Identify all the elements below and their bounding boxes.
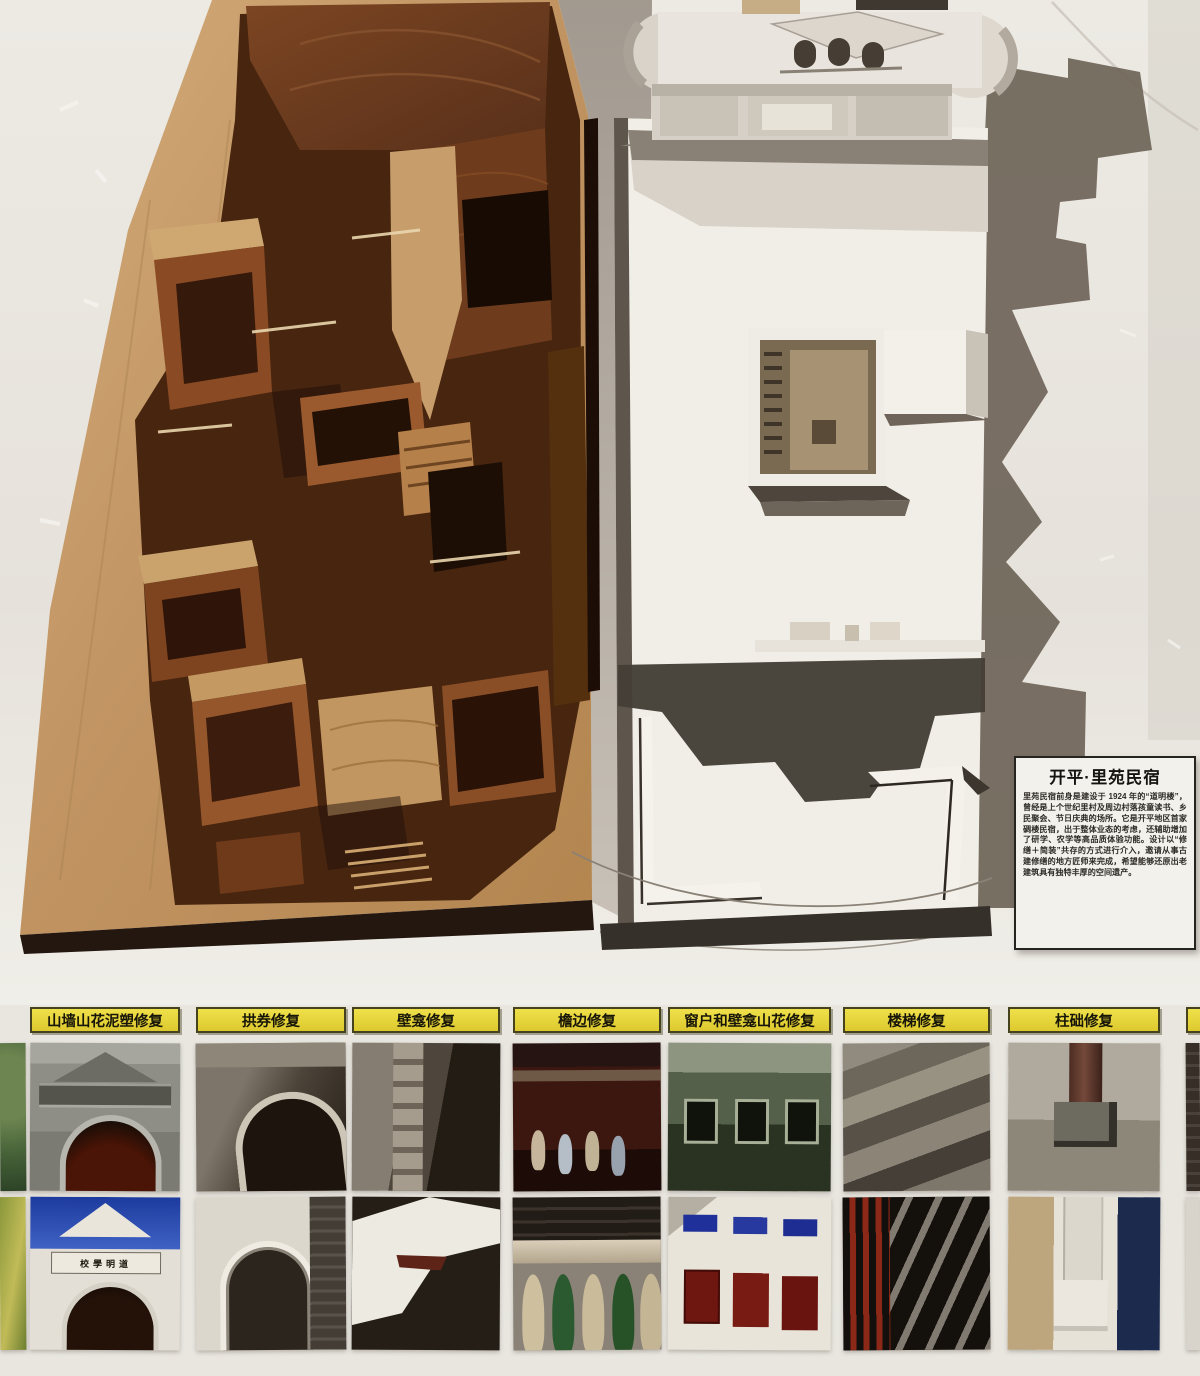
baluster-vases-shape [531,1131,545,1171]
blue-panels-shape [683,1215,717,1232]
plinth-shape [1053,1102,1117,1147]
baluster-vases-shape [522,1275,544,1351]
photo-after: 校學明道 [30,1197,181,1351]
info-card-title: 开平·里苑民宿 [1023,764,1187,788]
section-label: 拱券修复 [196,1007,346,1033]
plinth-shape [1053,1279,1108,1325]
section-label: 壁龛修复 [352,1007,500,1033]
partial-label [1186,1007,1200,1033]
section-stairs: 楼梯修复 [843,1005,990,1376]
photo-after [196,1197,347,1351]
rail-shape [513,1239,661,1263]
window-shape [785,1099,819,1144]
photo-before [30,1043,181,1192]
photo-after [668,1197,832,1351]
partial-photos-left [0,1005,26,1376]
photo-before [1008,1043,1161,1192]
partial-photos-right [1186,1005,1200,1376]
red-baluster-shape [843,1197,891,1350]
arch-shape [220,1241,317,1351]
window-shape [684,1099,718,1144]
photo-before [843,1043,991,1192]
photo-after [1008,1197,1161,1351]
section-label: 柱础修复 [1008,1007,1160,1033]
column-shape [393,1043,423,1191]
photo-partial-trees [0,1043,26,1191]
column-shape [1069,1043,1103,1111]
photo-before [352,1043,501,1192]
section-niche: 壁龛修复 [352,1005,500,1376]
section-label: 楼梯修复 [843,1007,990,1033]
section-gable-stucco: 山墙山花泥塑修复 校學明道 [30,1005,180,1376]
photo-partial-field [0,1197,26,1350]
gate-plaque: 校學明道 [51,1252,161,1274]
photo-before [196,1043,347,1192]
photo-after [513,1197,662,1351]
column-shape [1063,1197,1104,1283]
photo-before [668,1043,832,1192]
arch-shape [61,1281,158,1350]
exhibition-photo: 开平·里苑民宿 里苑民宿前身是建设于 1924 年的“道明楼”，曾经是上个世纪里… [0,0,1200,1376]
arch-shape [60,1115,162,1192]
restoration-strip: 山墙山花泥塑修复 校學明道 拱券修复 [0,1005,1200,1376]
info-card-body: 里苑民宿前身是建设于 1924 年的“道明楼”，曾经是上个世纪里村及周边村落孩童… [1023,792,1187,879]
pediment-shape [53,1052,157,1083]
cornice-shape [352,1197,501,1351]
photo-after [352,1197,501,1351]
section-windows-gable: 窗户和壁龛山花修复 [668,1005,831,1376]
brick-column-shape [310,1197,347,1350]
section-label: 窗户和壁龛山花修复 [668,1007,831,1033]
balustrade-shape [39,1083,171,1109]
ledge-shape [513,1069,661,1082]
cornice-shape [196,1043,346,1068]
brick-band-shape [513,1197,661,1241]
arch-shape [230,1086,347,1191]
photo-before [513,1043,662,1192]
photo-partial-white [1186,1197,1200,1350]
section-label: 檐边修复 [513,1007,661,1033]
pediment-shape [59,1203,151,1237]
steps-shape [884,1197,991,1351]
photo-after [843,1197,991,1351]
red-shutters-shape [684,1270,720,1324]
photo-partial-brick [1186,1043,1200,1191]
section-label: 山墙山花泥塑修复 [30,1007,180,1033]
section-column-base: 柱础修复 [1008,1005,1160,1376]
section-eaves: 檐边修复 [513,1005,661,1376]
info-card: 开平·里苑民宿 里苑民宿前身是建设于 1924 年的“道明楼”，曾经是上个世纪里… [1014,756,1196,950]
window-shape [735,1099,769,1144]
section-arch: 拱券修复 [196,1005,346,1376]
